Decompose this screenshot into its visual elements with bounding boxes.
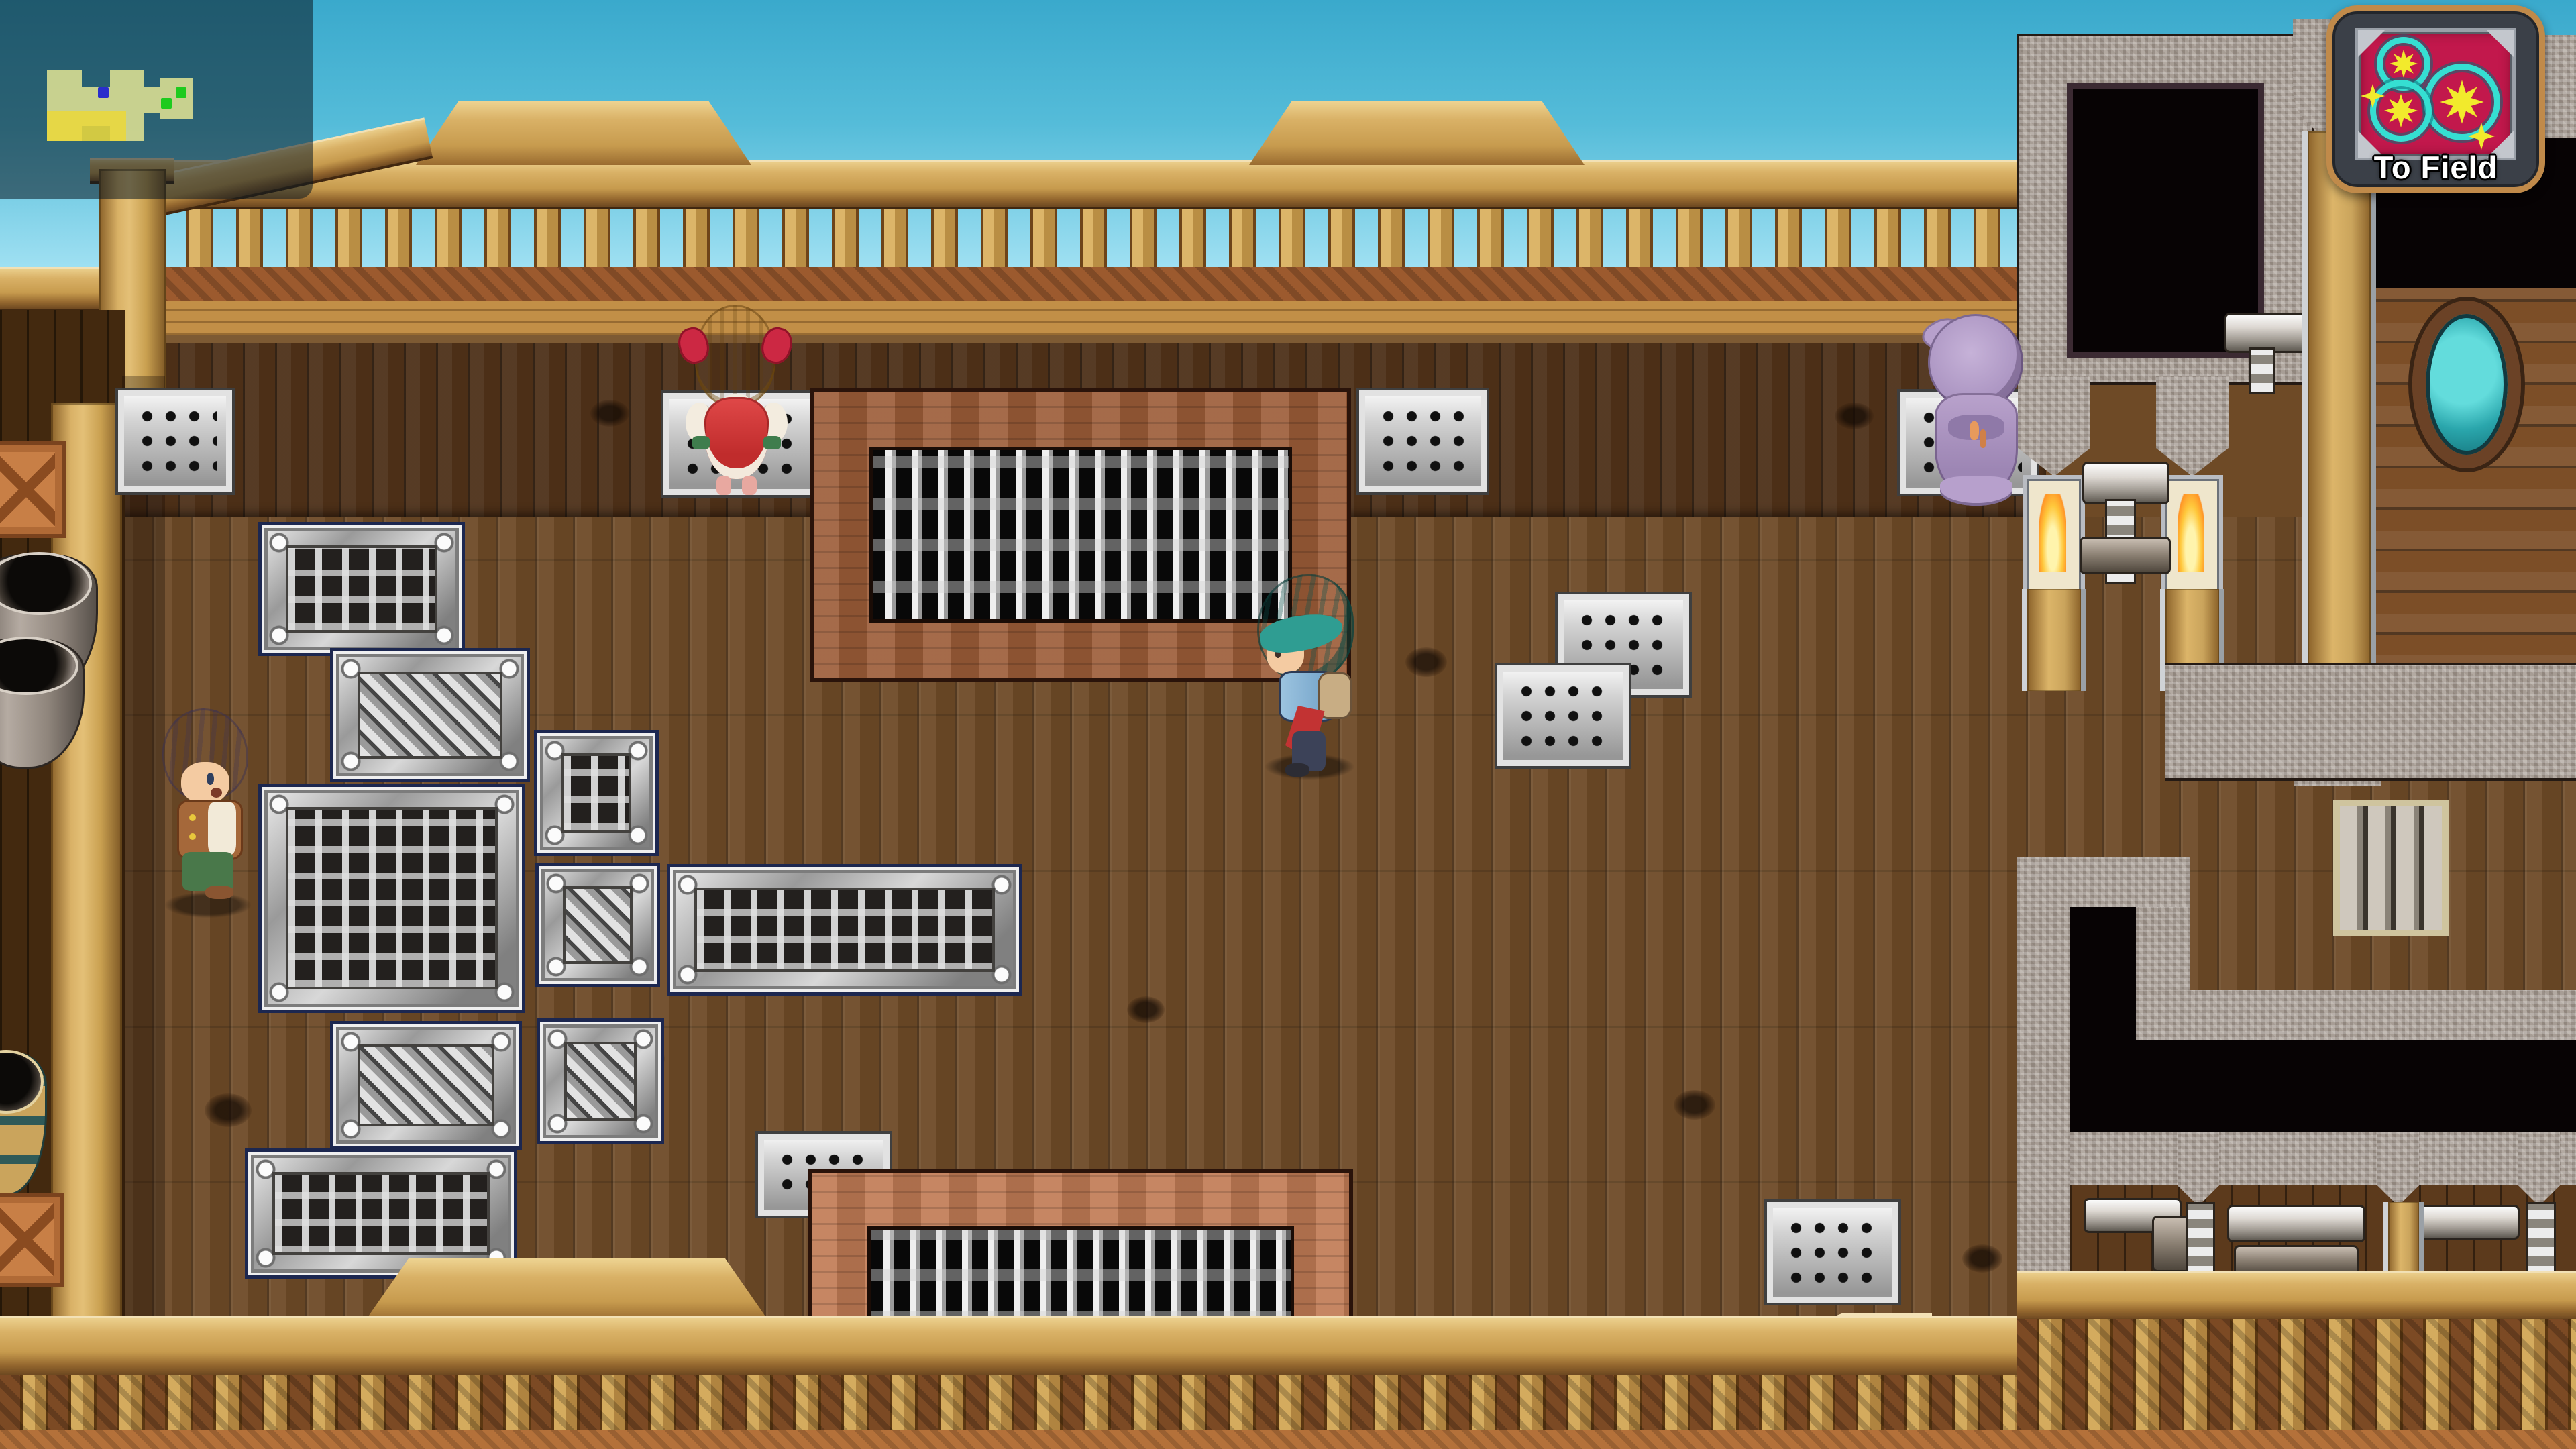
player-teal-hero[interactable]	[1249, 572, 1373, 781]
girl-leg-right	[742, 476, 757, 495]
machinery-pipe	[2227, 1205, 2365, 1242]
deck-knot	[590, 400, 629, 427]
npc-purple-hooded[interactable]	[1913, 314, 2039, 513]
hatch-pattern-weave	[563, 886, 633, 964]
post-cap	[2518, 1132, 2560, 1206]
lower-frame-band	[2136, 990, 2576, 1040]
metal-hatch	[534, 730, 659, 856]
compass-gears-icon	[2355, 28, 2516, 160]
bottom-railing-cap-right	[2017, 1271, 2576, 1322]
bottom-railing-balusters-right	[2017, 1319, 2576, 1433]
deck-knot	[205, 1093, 252, 1127]
stacked-planks	[2333, 800, 2449, 936]
man-face	[181, 762, 229, 804]
girl-dress	[704, 397, 769, 479]
deck-knot	[1835, 402, 1874, 429]
bottom-railing-cap	[0, 1316, 2074, 1378]
machinery-post	[2180, 1132, 2216, 1273]
girl-cuff-right	[763, 436, 781, 449]
game-viewport[interactable]: To Field	[0, 0, 2576, 1449]
minimap-player-marker	[98, 87, 109, 98]
metal-hatch	[535, 863, 660, 987]
metal-hatch	[537, 1018, 664, 1144]
pipe-bracket	[2249, 347, 2275, 394]
lantern-pillar-right	[2160, 376, 2224, 691]
hatch-pattern-weave	[358, 1044, 494, 1126]
floor-vent	[1764, 1199, 1901, 1305]
man-button	[189, 833, 196, 840]
metal-hatch	[258, 784, 525, 1013]
to-field-button[interactable]: To Field	[2326, 5, 2545, 193]
bottom-railing-balusters	[0, 1375, 2074, 1433]
gear-bottom-left	[2370, 80, 2432, 142]
hatch-pattern-grid	[272, 1172, 490, 1255]
lantern-flame-icon	[2178, 494, 2204, 572]
metal-hatch	[667, 864, 1022, 996]
grate-bars	[869, 447, 1292, 623]
wall-vent	[1356, 388, 1489, 495]
deck-knot	[1674, 1090, 1715, 1120]
top-railing-balusters	[114, 200, 2033, 270]
minimap	[0, 0, 313, 199]
wall-vent	[115, 388, 235, 495]
deck-knot	[1405, 647, 1447, 677]
hatch-pattern-grid	[286, 545, 437, 633]
machinery-pipe	[2415, 1205, 2520, 1240]
wooden-crate-top	[0, 441, 66, 538]
girl-leg-left	[716, 476, 731, 495]
steam-pipe-upper	[2224, 313, 2313, 353]
pillar-wood-base	[2022, 589, 2086, 691]
machinery-post	[2380, 1132, 2416, 1273]
hull-bottom-strip	[0, 1430, 2576, 1449]
pillar-cap	[2156, 376, 2229, 476]
npc-purple-haired-man[interactable]	[142, 708, 273, 918]
man-button	[189, 814, 196, 821]
lantern	[2161, 475, 2223, 597]
hero-boot	[1285, 763, 1309, 777]
minimap-ship-highlight	[47, 111, 126, 141]
lantern-flame-icon	[2039, 494, 2066, 572]
deck-knot	[1127, 996, 1165, 1023]
wooden-crate-bottom	[0, 1193, 64, 1287]
post-column	[2526, 1202, 2556, 1277]
lower-frame-top	[2017, 857, 2190, 907]
robe-hem	[1940, 476, 2012, 506]
right-mast	[2302, 131, 2376, 688]
top-railing-bump-left	[416, 101, 751, 165]
lower-deck-opening	[2070, 907, 2136, 1132]
post-cap	[2377, 1132, 2419, 1206]
stone-walkway-band	[2165, 663, 2576, 781]
steam-pipe	[2082, 462, 2169, 504]
top-railing-bump-right	[1249, 101, 1585, 165]
man-shoe	[205, 885, 233, 899]
post-cap	[2178, 1132, 2219, 1206]
hatch-pattern-grid	[561, 753, 631, 833]
man-shirt	[208, 802, 236, 855]
machinery-post	[2521, 1132, 2557, 1273]
hatch-pattern-weave	[564, 1042, 637, 1121]
lower-frame-left-leg	[2017, 857, 2070, 1335]
lower-deck-opening-wide	[2136, 1040, 2576, 1134]
minimap-ship-shape	[144, 87, 160, 113]
to-field-label: To Field	[2332, 149, 2539, 186]
hatch-pattern-grid	[694, 888, 995, 972]
man-mouth	[211, 788, 222, 798]
hooded-hands	[1970, 421, 1979, 440]
top-railing-cap	[114, 160, 2033, 209]
deck-edge-stripe	[114, 301, 2033, 335]
metal-hatch	[258, 522, 465, 656]
post-column	[2383, 1202, 2424, 1273]
railing-base-band	[114, 267, 2033, 302]
man-eye	[207, 773, 214, 785]
left-corner-rail-stub	[0, 267, 102, 311]
steam-pipe-lower	[2080, 537, 2171, 574]
deck-knot	[1962, 1244, 2002, 1273]
hatch-pattern-weave	[358, 672, 502, 759]
metal-hatch	[330, 648, 530, 782]
machinery-stone-band	[2070, 1132, 2576, 1186]
npc-girl-red-dress[interactable]	[676, 303, 797, 503]
hatch-pattern-grid	[286, 807, 498, 989]
bottom-railing-bump	[366, 1258, 768, 1320]
hooded-hands	[1980, 429, 1986, 448]
man-pants	[182, 852, 233, 891]
icon-corner-ornament	[2487, 30, 2514, 57]
minimap-npc-marker	[176, 87, 186, 98]
metal-hatch	[330, 1021, 522, 1150]
girl-cuff-left	[692, 436, 710, 449]
porthole-window	[2412, 301, 2521, 468]
gear-large	[2424, 64, 2500, 140]
floor-vent	[1495, 663, 1631, 769]
post-column	[2186, 1202, 2215, 1277]
minimap-npc-marker	[161, 98, 172, 109]
